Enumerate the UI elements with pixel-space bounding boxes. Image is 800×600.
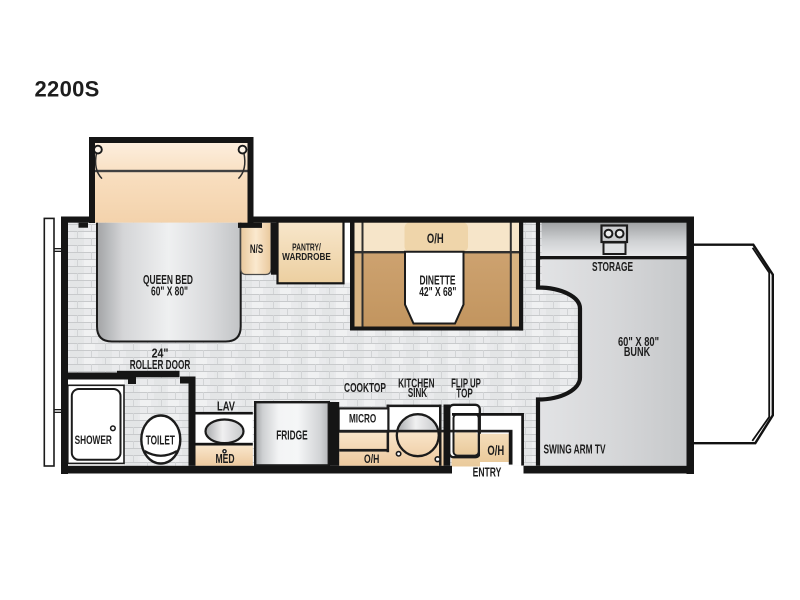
svg-text:60" X 80": 60" X 80" xyxy=(151,285,188,299)
svg-text:SWING ARM TV: SWING ARM TV xyxy=(543,443,606,457)
svg-text:SHOWER: SHOWER xyxy=(75,435,113,448)
svg-text:COOKTOP: COOKTOP xyxy=(344,381,386,395)
svg-text:O/H: O/H xyxy=(364,454,379,466)
svg-text:STORAGE: STORAGE xyxy=(592,260,633,274)
svg-text:ENTRY: ENTRY xyxy=(473,466,502,480)
svg-text:O/H: O/H xyxy=(487,443,504,458)
svg-text:TOILET: TOILET xyxy=(146,434,176,448)
svg-text:42" X 68": 42" X 68" xyxy=(419,285,456,299)
svg-text:WARDROBE: WARDROBE xyxy=(282,250,331,262)
svg-text:MED: MED xyxy=(215,452,234,466)
svg-text:TOP: TOP xyxy=(456,387,472,401)
svg-text:SINK: SINK xyxy=(408,386,427,400)
svg-text:MICRO: MICRO xyxy=(349,413,376,426)
svg-text:2200S: 2200S xyxy=(35,77,100,102)
svg-text:BUNK: BUNK xyxy=(624,346,650,360)
svg-text:FRIDGE: FRIDGE xyxy=(276,429,307,443)
svg-text:O/H: O/H xyxy=(427,232,444,247)
svg-text:ROLLER DOOR: ROLLER DOOR xyxy=(130,358,191,372)
svg-text:LAV: LAV xyxy=(217,400,235,414)
svg-text:N/S: N/S xyxy=(250,244,263,257)
